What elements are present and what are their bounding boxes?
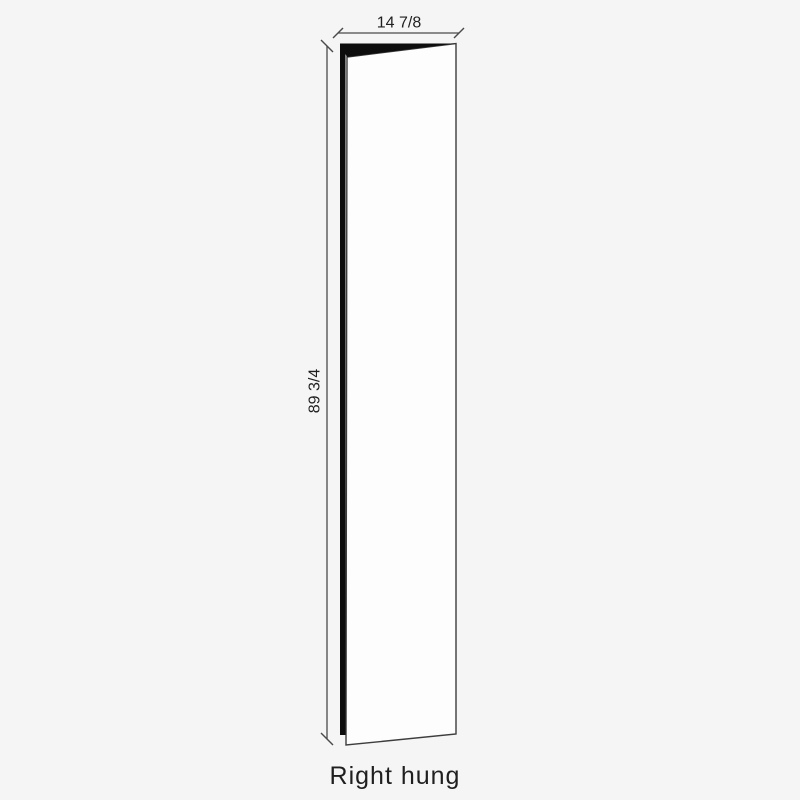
width-dimension: 14 7/8 [333, 15, 464, 39]
height-dimension-label: 89 3/4 [307, 369, 324, 414]
door-free-edge [340, 44, 346, 736]
width-dimension-label: 14 7/8 [377, 15, 422, 32]
height-dimension: 89 3/4 [307, 40, 334, 745]
door-front-face [346, 44, 456, 746]
door-diagram-canvas: 14 7/8 89 3/4 Right hung [0, 0, 800, 800]
door-diagram: 14 7/8 89 3/4 Right hung [0, 0, 800, 800]
diagram-caption: Right hung [330, 762, 461, 790]
